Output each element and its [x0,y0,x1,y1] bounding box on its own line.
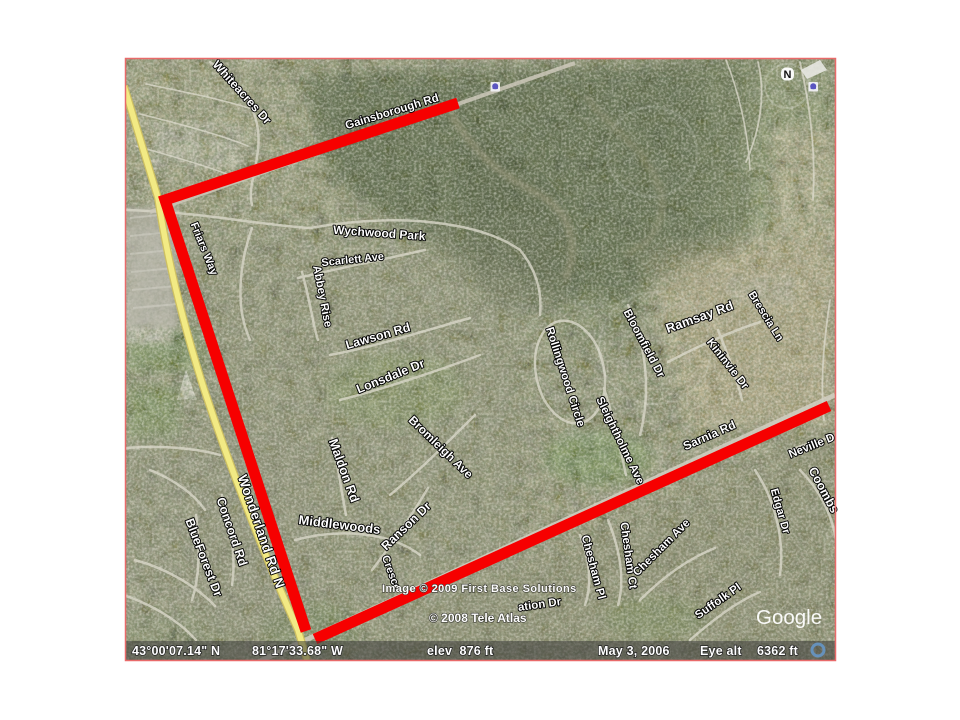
svg-text:Google: Google [756,606,822,629]
svg-text:May 3, 2006: May 3, 2006 [598,644,670,658]
svg-text:Image © 2009 First Base Soluti: Image © 2009 First Base Solutions [382,583,577,595]
svg-text:© 2008 Tele Atlas: © 2008 Tele Atlas [429,611,527,625]
svg-text:6362 ft: 6362 ft [757,644,799,658]
svg-text:43°00'07.14" N: 43°00'07.14" N [132,644,220,658]
svg-text:81°17'33.68" W: 81°17'33.68" W [252,644,343,658]
svg-text:elev 876 ft: elev 876 ft [427,644,494,658]
svg-text:N: N [784,69,792,81]
svg-text:Eye alt: Eye alt [700,644,742,658]
